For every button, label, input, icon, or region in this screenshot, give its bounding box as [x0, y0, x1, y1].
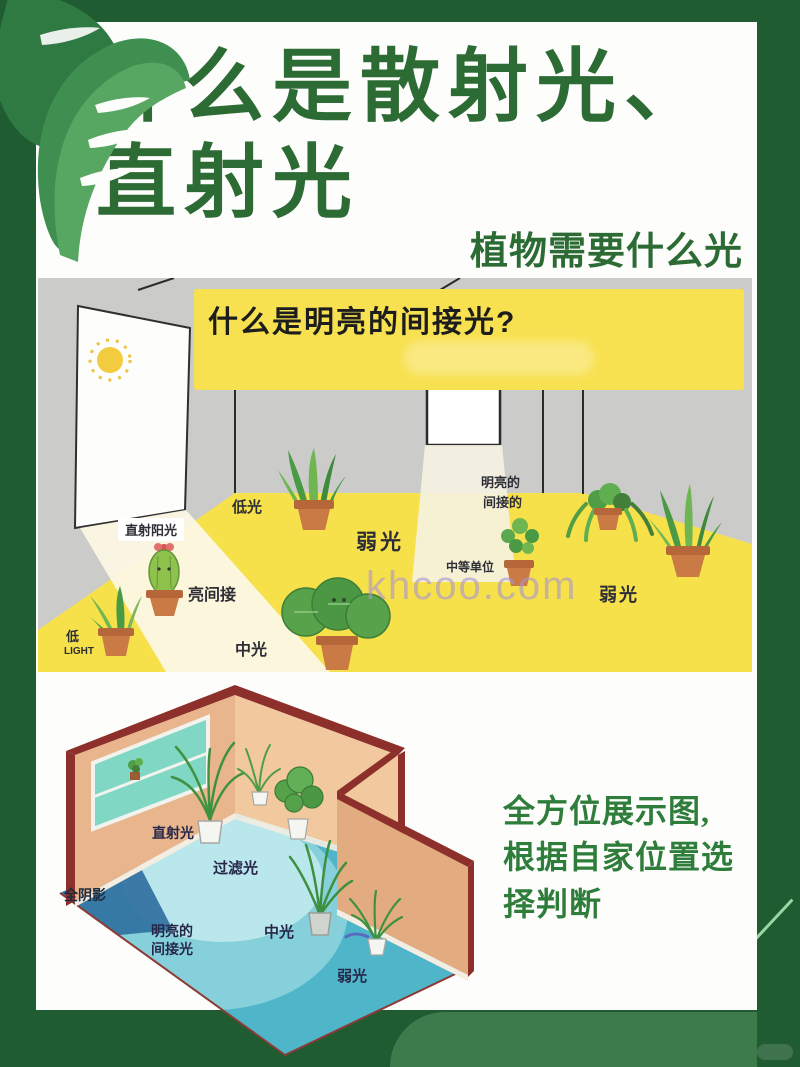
label-filtered-light: 过滤光 [213, 857, 258, 878]
label-bright-line1: 明亮的 [481, 472, 520, 491]
label-weak-light-center: 弱光 [356, 526, 404, 556]
iso-room-graphic [38, 685, 508, 1060]
label-iso-weak-light: 弱光 [337, 965, 367, 986]
label-iso-bright-line2: 间接光 [151, 939, 193, 959]
label-iso-bright-line1: 明亮的 [151, 921, 193, 941]
iso-room-illustration: 直射光 过滤光 全阴影 明亮的 间接光 中光 弱光 [38, 685, 508, 1060]
label-medium-light: 中光 [235, 636, 267, 660]
label-iso-medium-light: 中光 [264, 921, 294, 942]
door-window [75, 306, 190, 528]
caption-text: 全方位展示图, 根据自家位置选 择判断 [503, 788, 734, 927]
page-subtitle: 植物需要什么光 [470, 220, 743, 275]
label-low-cn: 低 [66, 630, 79, 644]
question-banner: 什么是明亮的间接光? [194, 289, 744, 390]
caption-line3: 择判断 [503, 881, 734, 927]
label-direct-light: 直射光 [152, 823, 194, 843]
label-weak-light-right: 弱光 [599, 581, 639, 607]
banner-question-text: 什么是明亮的间接光? [208, 297, 516, 341]
watermark-text: khcoo.com [366, 564, 577, 609]
label-bright-line2: 间接的 [483, 492, 522, 511]
window [427, 388, 500, 445]
flat-room-illustration: 什么是明亮的间接光? 低光 直射阳光 亮间接 低 LIGHT 中光 弱光 明亮的… [38, 278, 752, 672]
label-low-light: 低光 [232, 496, 262, 517]
label-direct-sunlight: 直射阳光 [118, 518, 184, 541]
banner-smudge [404, 341, 594, 375]
monstera-leaf-decoration [0, 0, 210, 280]
label-full-shade: 全阴影 [64, 885, 106, 905]
label-low-en: LIGHT [64, 646, 94, 657]
caption-line2: 根据自家位置选 [503, 834, 734, 880]
corner-watermark [757, 1044, 793, 1060]
caption-line1: 全方位展示图, [503, 788, 734, 834]
label-bright-indirect-short: 亮间接 [188, 581, 236, 605]
